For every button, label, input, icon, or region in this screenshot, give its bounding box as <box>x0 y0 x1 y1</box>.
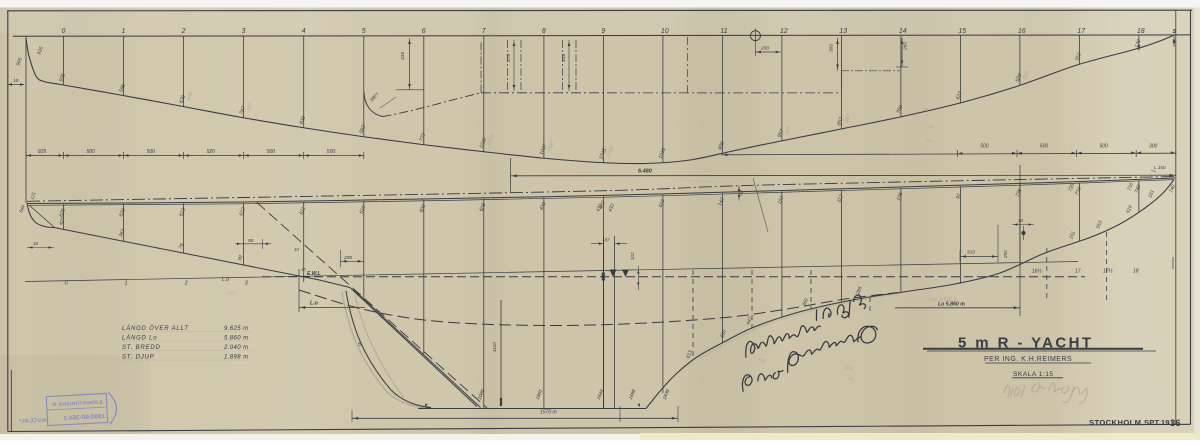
svg-text:2: 2 <box>181 28 186 35</box>
svg-text:500: 500 <box>147 149 156 155</box>
svg-text:SPT.19: SPT.19 <box>1144 418 1170 427</box>
svg-text:250: 250 <box>1003 250 1008 259</box>
svg-text:5: 5 <box>358 342 361 348</box>
svg-text:1: 1 <box>122 28 126 35</box>
svg-text:5.860 m: 5.860 m <box>224 336 248 342</box>
svg-text:L 150: L 150 <box>1154 165 1166 170</box>
svg-text:2.040 m: 2.040 m <box>223 345 248 351</box>
svg-text:415: 415 <box>561 54 567 62</box>
svg-text:12: 12 <box>780 28 788 35</box>
svg-text:LÄNGD Lo: LÄNGD Lo <box>122 335 157 342</box>
svg-text:vo: vo <box>848 376 854 382</box>
svg-text:STOCKHOLM: STOCKHOLM <box>1089 418 1141 427</box>
svg-text:1570 m: 1570 m <box>540 410 557 416</box>
svg-text:ST. BREDD: ST. BREDD <box>122 345 161 351</box>
svg-text:0: 0 <box>62 28 66 35</box>
svg-text:F²a: F²a <box>845 366 853 372</box>
svg-text:2: 2 <box>184 281 188 287</box>
svg-text:300: 300 <box>829 44 835 52</box>
svg-text:º:06ℑℑ viA: º:06ℑℑ viA <box>19 417 47 425</box>
svg-text:14: 14 <box>899 28 907 35</box>
svg-text:vo: vo <box>928 124 934 130</box>
svg-text:500: 500 <box>1040 144 1049 150</box>
svg-text:10: 10 <box>661 28 669 35</box>
svg-text:10: 10 <box>301 267 306 272</box>
svg-text:1: 1 <box>125 281 128 287</box>
svg-text:18: 18 <box>1133 269 1139 275</box>
svg-text:6.480: 6.480 <box>638 169 652 175</box>
svg-text:500: 500 <box>980 144 989 150</box>
svg-text:10: 10 <box>33 241 39 246</box>
svg-text:17: 17 <box>1075 269 1081 275</box>
svg-text:4: 4 <box>302 28 306 35</box>
svg-text:520: 520 <box>207 149 216 155</box>
svg-text:8: 8 <box>542 28 546 35</box>
svg-text:Fio: Fio <box>926 139 933 145</box>
svg-text:5: 5 <box>362 28 366 35</box>
svg-text:L.o: L.o <box>310 301 318 307</box>
svg-text:55p: 55p <box>758 358 767 364</box>
svg-text:ST. DJUP: ST. DJUP <box>122 355 155 361</box>
svg-text:9.625 m: 9.625 m <box>224 326 248 332</box>
svg-text:500: 500 <box>87 149 96 155</box>
svg-text:11: 11 <box>720 28 727 35</box>
svg-text:10: 10 <box>13 78 19 84</box>
svg-text:17½: 17½ <box>1103 268 1114 275</box>
svg-text:200: 200 <box>760 46 769 52</box>
svg-text:16½: 16½ <box>1032 268 1043 275</box>
svg-text:L.o: L.o <box>222 277 229 283</box>
svg-text:E.W.L: E.W.L <box>307 271 321 277</box>
svg-text:SKALA 1:15: SKALA 1:15 <box>1013 371 1054 378</box>
svg-text:435: 435 <box>400 52 406 60</box>
svg-text:PER ING. K.H.REIMERS: PER ING. K.H.REIMERS <box>984 356 1072 363</box>
svg-text:15: 15 <box>958 28 966 35</box>
svg-text:~145: ~145 <box>224 291 235 297</box>
svg-text:6: 6 <box>422 28 426 35</box>
svg-text:500: 500 <box>1099 144 1108 150</box>
svg-text:300: 300 <box>1149 144 1158 150</box>
svg-text:18: 18 <box>1137 28 1145 35</box>
svg-text:36: 36 <box>1170 418 1181 429</box>
svg-text:90: 90 <box>248 238 254 244</box>
svg-text:Fio: Fio <box>921 107 929 114</box>
svg-text:87: 87 <box>605 238 611 243</box>
svg-text:LÄNGD ÖVER ALLT: LÄNGD ÖVER ALLT <box>122 325 189 332</box>
svg-text:260: 260 <box>903 42 909 51</box>
svg-text:CwL 5.810 m: CwL 5.810 m <box>928 297 957 303</box>
svg-text:925: 925 <box>38 149 47 155</box>
svg-text:30: 30 <box>1018 218 1024 223</box>
svg-text:9: 9 <box>601 28 605 35</box>
svg-text:310: 310 <box>967 250 975 256</box>
svg-text:500: 500 <box>327 149 336 155</box>
svg-text:13: 13 <box>839 28 847 35</box>
svg-text:102: 102 <box>630 252 635 260</box>
svg-text:1110: 1110 <box>492 342 498 352</box>
svg-text:1.898 m: 1.898 m <box>224 355 248 361</box>
svg-text:3: 3 <box>242 28 246 35</box>
svg-text:475: 475 <box>506 54 512 62</box>
svg-text:200: 200 <box>343 255 352 261</box>
svg-text:500: 500 <box>267 149 276 155</box>
svg-text:10: 10 <box>294 247 299 252</box>
svg-text:16: 16 <box>1018 28 1026 35</box>
svg-text:S: S <box>1173 29 1177 35</box>
svg-text:17: 17 <box>1077 28 1086 35</box>
